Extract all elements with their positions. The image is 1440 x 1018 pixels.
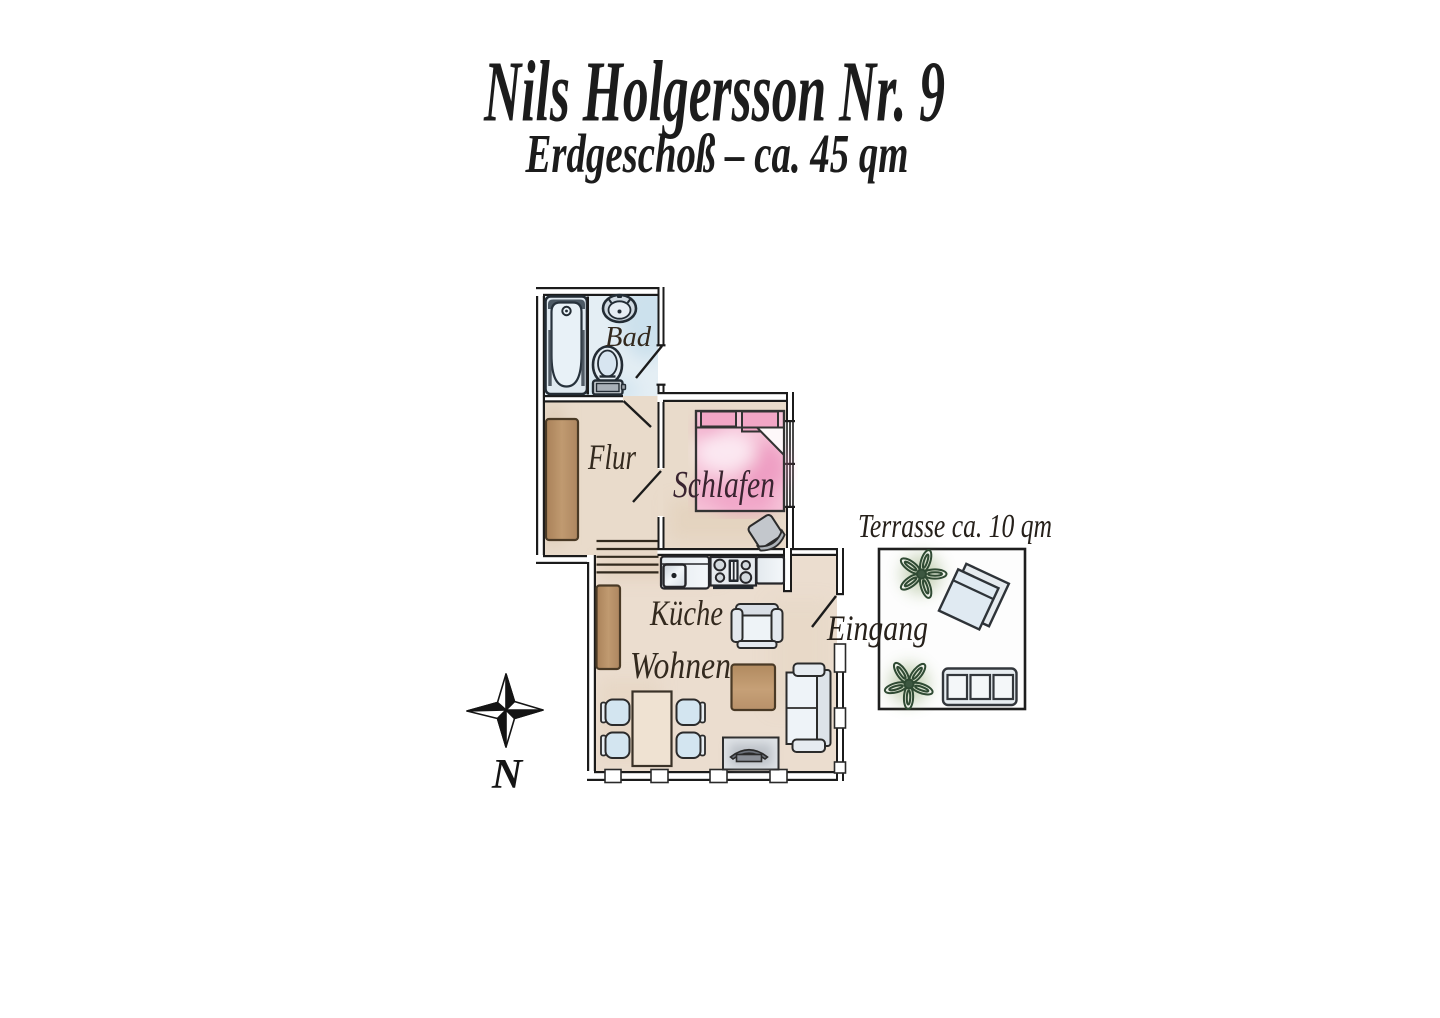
svg-text:Bad: Bad: [605, 322, 652, 353]
svg-text:Erdgeschoß – ca. 45 qm: Erdgeschoß – ca. 45 qm: [525, 124, 909, 185]
svg-text:N: N: [491, 752, 524, 798]
svg-text:Terrasse ca. 10 qm: Terrasse ca. 10 qm: [858, 508, 1052, 545]
svg-text:Schlafen: Schlafen: [673, 464, 775, 506]
svg-text:Wohnen: Wohnen: [630, 645, 731, 687]
svg-text:Flur: Flur: [587, 437, 636, 477]
svg-text:Küche: Küche: [649, 593, 723, 633]
svg-text:Eingang: Eingang: [826, 608, 928, 648]
